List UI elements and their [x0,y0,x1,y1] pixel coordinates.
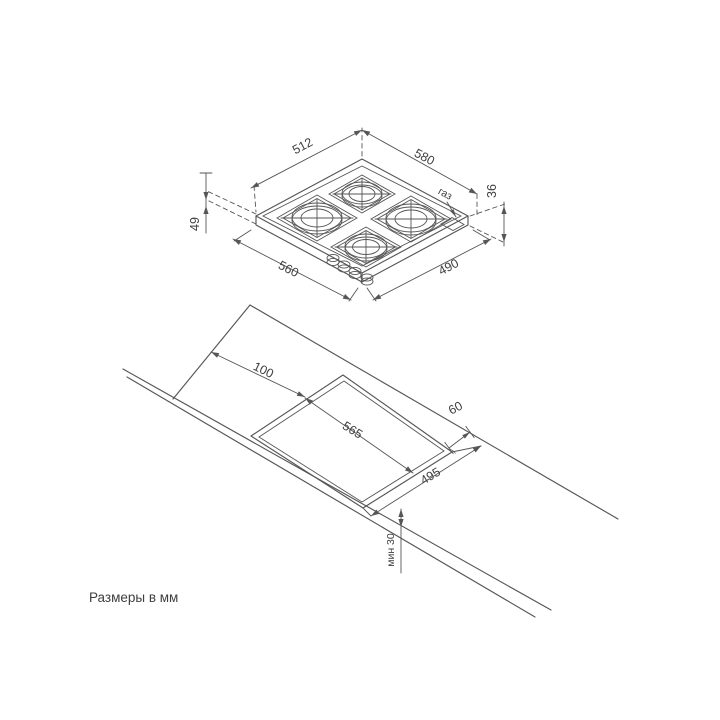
worktop-cutout-view: 100 565 495 60 мин 30 [123,305,618,617]
dim-label-60: 60 [446,399,465,418]
dim-label-490: 490 [436,256,461,278]
dim-label-580: 580 [412,146,437,168]
hob-isometric-view: 512 580 газ 36 49 560 490 [188,128,507,301]
cutout-outline [251,375,452,508]
dim-label-36: 36 [485,184,499,198]
dim-label-min30: мин 30 [385,533,397,567]
worktop-dimensions [211,352,481,573]
dim-label-100: 100 [251,359,276,381]
burner-right [371,196,451,242]
installation-diagram: 512 580 газ 36 49 560 490 [0,0,720,720]
units-note: Размеры в мм [89,590,178,605]
dim-label-49: 49 [188,217,202,231]
cutout-inner-line [259,381,444,502]
dim-label-512: 512 [290,135,315,157]
dim-label-560: 560 [276,258,301,280]
worktop-back-edge [250,305,618,519]
worktop-front-edge-top [123,369,551,610]
worktop-front-edge-bottom [127,377,535,617]
diagram-page: 512 580 газ 36 49 560 490 [0,0,720,720]
dim-label-565: 565 [340,419,365,442]
hob-dimensions [200,128,507,301]
